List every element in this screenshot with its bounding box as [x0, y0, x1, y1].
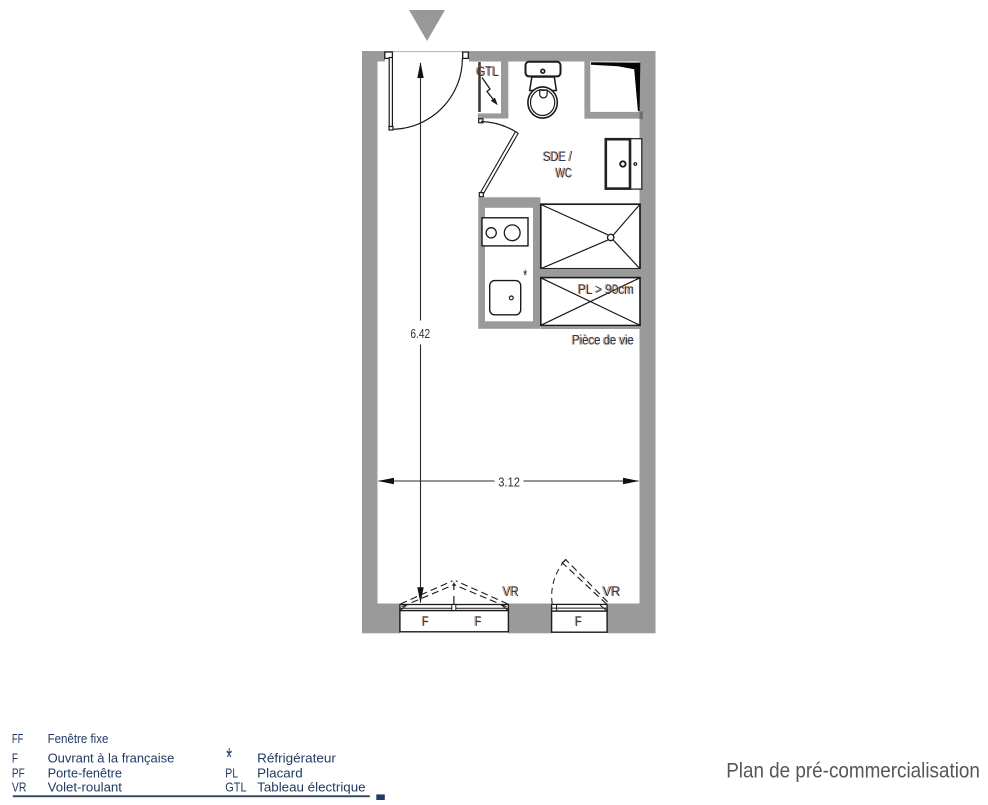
svg-text:PL: PL: [225, 765, 238, 780]
svg-text:Placard: Placard: [257, 765, 303, 780]
svg-text:SDE /: SDE /: [543, 148, 572, 164]
svg-text:Pièce de vie: Pièce de vie: [572, 333, 634, 348]
svg-text:3.12: 3.12: [498, 475, 520, 490]
svg-text:Réfrigérateur: Réfrigérateur: [257, 750, 336, 765]
svg-text:F: F: [12, 750, 18, 765]
svg-text:VR: VR: [503, 584, 519, 599]
svg-text:Plan de pré-commercialisation: Plan de pré-commercialisation: [726, 759, 980, 783]
svg-text:PF: PF: [12, 765, 25, 780]
svg-text:F: F: [422, 614, 429, 629]
svg-text:Porte-fenêtre: Porte-fenêtre: [48, 765, 122, 780]
svg-text:VR: VR: [12, 779, 27, 794]
svg-text:PL > 90cm: PL > 90cm: [578, 282, 634, 297]
svg-text:VR: VR: [603, 584, 621, 599]
svg-text:F: F: [575, 614, 582, 629]
svg-text:GTL: GTL: [225, 779, 246, 794]
svg-text:GTL: GTL: [477, 64, 500, 79]
svg-text:Volet-roulant: Volet-roulant: [48, 779, 123, 794]
svg-text:Fenêtre fixe: Fenêtre fixe: [48, 731, 109, 746]
svg-text:Ouvrant à la française: Ouvrant à la française: [48, 750, 175, 765]
svg-text:Tableau électrique: Tableau électrique: [257, 779, 365, 794]
svg-text:6.42: 6.42: [410, 326, 430, 341]
svg-text:F: F: [475, 614, 482, 629]
svg-text:*: *: [523, 266, 527, 284]
svg-text:FF: FF: [12, 731, 24, 746]
svg-text:WC: WC: [556, 165, 572, 181]
